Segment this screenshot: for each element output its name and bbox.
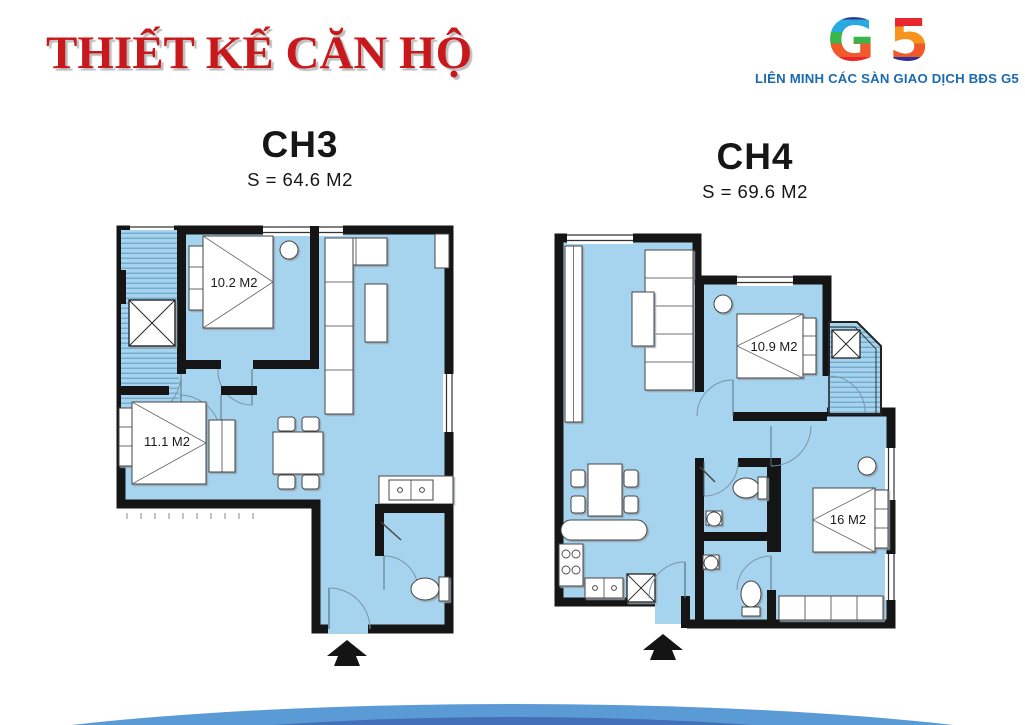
chair	[571, 470, 585, 487]
stool	[858, 457, 876, 475]
g5-logo-icon: G 5	[806, 10, 956, 70]
logo-tagline: LIÊN MINH CÁC SÀN GIAO DỊCH BĐS G5	[755, 71, 1007, 86]
floorplan-ch3: 10.2 M2	[113, 222, 458, 670]
kitchen-sink	[389, 480, 433, 500]
logo-letter-5: 5	[889, 10, 929, 70]
poster: THIẾT KẾ CĂN HỘ G 5	[0, 0, 1025, 725]
entry-arrow-icon	[643, 634, 683, 660]
stove	[559, 544, 583, 586]
plan-name-ch3: CH3	[115, 124, 485, 166]
window	[443, 374, 455, 432]
coffee-table	[365, 284, 387, 342]
coffee-table	[632, 292, 654, 346]
floorplan-ch4: 10.9 M2	[551, 226, 903, 668]
tv-cabinet	[435, 234, 449, 268]
plan-heading-ch3: CH3 S = 64.6 M2	[115, 124, 485, 191]
kitchen	[379, 476, 453, 504]
toilet	[733, 477, 767, 499]
window-sill-cabinet	[565, 246, 582, 422]
ac-box-icon	[832, 330, 860, 358]
plan-area-ch4: S = 69.6 M2	[560, 181, 950, 203]
window	[263, 224, 343, 236]
dining-table	[588, 464, 622, 516]
chair	[302, 475, 319, 489]
balcony	[829, 322, 881, 414]
room-label: 10.2 M2	[211, 275, 258, 290]
entry-arrow-icon	[327, 640, 367, 666]
plan-area-ch3: S = 64.6 M2	[115, 169, 485, 191]
page-title: THIẾT KẾ CĂN HỘ	[46, 26, 472, 80]
room-label: 11.1 M2	[144, 434, 190, 449]
window-ticks	[127, 513, 253, 519]
logo-letter-g: G	[827, 10, 875, 70]
chair	[624, 496, 638, 513]
window	[567, 232, 633, 244]
stool	[714, 295, 732, 313]
window	[885, 554, 897, 600]
toilet	[411, 577, 449, 601]
room-label: 10.9 M2	[751, 339, 798, 354]
chair	[571, 496, 585, 513]
plan-name-ch4: CH4	[560, 136, 950, 178]
chair	[278, 475, 295, 489]
room-label: 16 M2	[830, 512, 866, 527]
washbasin	[706, 511, 722, 526]
ac-box-icon	[129, 300, 175, 346]
stool	[280, 241, 298, 259]
wardrobe	[779, 596, 883, 620]
kitchen-sink	[585, 578, 623, 598]
window	[737, 274, 793, 286]
toilet	[741, 581, 761, 616]
footer-wave	[0, 699, 1025, 725]
chair	[278, 417, 295, 431]
counter	[561, 520, 647, 540]
g5-logo: G 5 LIÊN MINH CÁC SÀN GIAO DỊCH BĐS G5	[755, 10, 1007, 86]
plan-heading-ch4: CH4 S = 69.6 M2	[560, 136, 950, 203]
chair	[302, 417, 319, 431]
chair	[624, 470, 638, 487]
dining-table	[273, 432, 323, 474]
wardrobe	[209, 420, 235, 472]
washbasin	[703, 555, 719, 570]
